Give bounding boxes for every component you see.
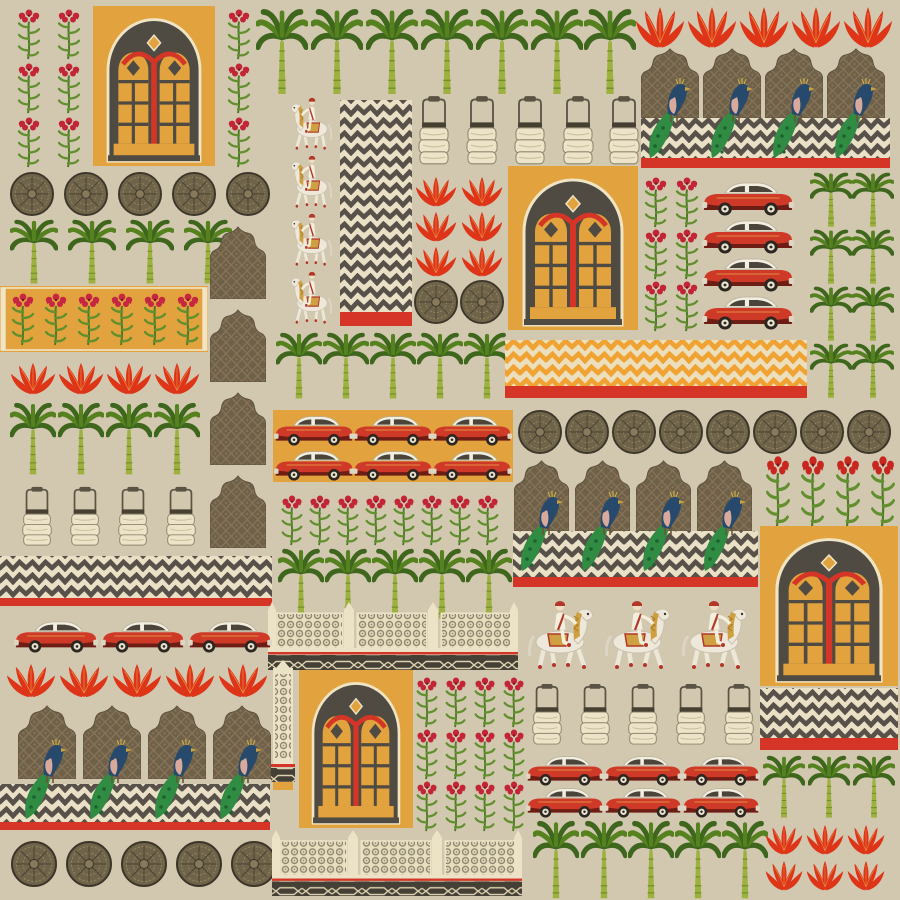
coin-medallion-motif [660,411,702,453]
flower-stalk-motif [19,64,39,113]
palm-tree-motif [374,551,417,618]
lotus-motif [7,664,55,697]
palm-tree-motif [854,174,893,226]
lotus-motif [416,177,457,206]
palm-tree-motif [325,335,368,398]
vintage-car-motif [702,259,794,292]
lotus-motif [844,7,892,48]
flower-stalk-motif [417,730,436,779]
vintage-car-motif [702,297,794,330]
coin-medallion-motif [848,411,890,453]
chevron-band [340,100,412,312]
chevron-band [760,688,898,738]
tiffin-can-motif [23,487,52,545]
horse-rider-motif [291,214,331,266]
tiffin-can-motif [609,96,639,164]
lotus-motif [766,825,803,854]
flower-stalk-motif [19,118,39,167]
door-panel-motif [760,526,898,686]
tiffin-can-motif [167,487,196,545]
tiffin-can-motif [725,684,754,744]
flower-stalk-motif [504,782,523,831]
palm-tree-motif [812,174,851,226]
vintage-car-motif [682,757,760,786]
lotus-motif [113,664,161,697]
vintage-car-motif [604,757,682,786]
flower-stalk-motif [802,456,824,526]
flower-stalk-motif [229,64,249,113]
palm-tree-motif [419,335,462,398]
tiffin-can-motif [119,487,148,545]
flower-stalk-motif [310,496,329,545]
fence-pillar-motif [271,660,295,790]
tiffin-can-motif [533,684,562,744]
red-strip [641,158,890,168]
palm-tree-motif [313,12,361,94]
vintage-car-motif [604,789,682,818]
vintage-car-motif [702,183,794,216]
palm-tree-motif [468,551,511,618]
palm-tree-motif [854,288,893,340]
palm-tree-motif [855,758,894,818]
palm-tree-motif [60,405,103,474]
flower-stalk-motif [475,678,494,727]
horse-rider-motif [530,601,593,669]
coin-medallion-motif [232,842,276,886]
palm-tree-motif [810,758,849,818]
palm-tree-motif [535,824,578,899]
vintage-car-motif [526,789,604,818]
flower-stalk-motif [677,178,697,227]
lotus-motif [848,861,885,890]
palm-tree-motif [854,345,893,397]
flower-stalk-motif [872,456,894,526]
palm-tree-motif [466,335,509,398]
flower-stalk-motif [422,496,441,545]
flower-stalk-motif [504,678,523,727]
door-panel-motif [299,670,413,828]
tiffin-can-motif [467,96,497,164]
pattern-artwork [0,0,900,900]
lotus-motif [11,363,55,394]
tiffin-can-motif [563,96,593,164]
horse-rider-motif [684,601,747,669]
lotus-motif [462,247,503,276]
lotus-motif [740,7,788,48]
vintage-car-motif [526,757,604,786]
palm-tree-motif [586,12,634,94]
chevron-band [505,340,807,386]
flower-stalk-motif [837,456,859,526]
flower-band-panel [0,286,208,352]
tiffin-can-motif [629,684,658,744]
lotus-motif [848,825,885,854]
flower-stalk-motif [450,496,469,545]
palm-tree-motif [630,824,673,899]
flower-stalk-motif [282,496,301,545]
lotus-motif [688,7,736,48]
red-strip [513,577,758,587]
palm-tree-motif [278,335,321,398]
flower-stalk-motif [677,282,697,331]
palm-tree-motif [812,288,851,340]
lotus-motif [107,363,151,394]
coin-medallion-motif [177,842,221,886]
palm-tree-motif [478,12,526,94]
coin-medallion-motif [122,842,166,886]
flower-stalk-motif [366,496,385,545]
lotus-motif [59,363,103,394]
flower-stalk-motif [446,782,465,831]
palm-tree-motif [70,222,115,284]
flower-stalk-motif [338,496,357,545]
flower-stalk-motif [767,456,789,526]
flower-stalk-motif [417,782,436,831]
red-strip [760,738,898,750]
coin-medallion-motif [12,842,56,886]
lotus-motif [166,664,214,697]
flower-stalk-motif [59,10,79,59]
palm-tree-motif [12,222,57,284]
palm-tree-motif [583,824,626,899]
red-strip [340,312,412,326]
artwork-svg [0,0,900,900]
flower-stalk-motif [394,496,413,545]
palm-tree-motif [156,405,199,474]
coin-medallion-motif [173,173,215,215]
flower-stalk-motif [646,230,666,279]
horse-rider-motif [607,601,670,669]
lotus-motif [807,861,844,890]
flower-stalk-motif [59,118,79,167]
flower-stalk-motif [677,230,697,279]
lotus-motif [416,212,457,241]
flower-stalk-motif [446,678,465,727]
lotus-motif [155,363,199,394]
coin-medallion-motif [67,842,111,886]
tiffin-can-motif [419,96,449,164]
coin-medallion-motif [519,411,561,453]
palm-tree-motif [421,551,464,618]
lotus-motif [636,7,684,48]
lotus-motif [792,7,840,48]
tiffin-can-motif [677,684,706,744]
vintage-car-motif [101,622,185,653]
jali-arch-motif [210,476,266,548]
palm-tree-motif [854,231,893,283]
palm-tree-motif [108,405,151,474]
palm-tree-motif [812,345,851,397]
lotus-motif [462,177,503,206]
horse-rider-motif [291,98,331,150]
flower-stalk-motif [59,64,79,113]
coin-medallion-motif [801,411,843,453]
palm-tree-motif [128,222,173,284]
tiffin-can-motif [581,684,610,744]
red-strip [0,822,270,830]
tiffin-can-motif [515,96,545,164]
horse-rider-motif [291,272,331,324]
coin-medallion-motif [566,411,608,453]
coin-medallion-motif [11,173,53,215]
palm-tree-motif [280,551,323,618]
palm-tree-motif [12,405,55,474]
flower-stalk-motif [646,282,666,331]
door-panel-motif [93,6,215,166]
lotus-motif [60,664,108,697]
chevron-band [0,556,272,598]
coin-medallion-motif [415,281,457,323]
flower-stalk-motif [446,730,465,779]
palm-tree-motif [372,335,415,398]
palm-tree-motif [258,12,306,94]
palm-tree-motif [812,231,851,283]
red-strip [505,386,807,398]
lotus-motif [766,861,803,890]
palm-tree-motif [423,12,471,94]
flower-stalk-motif [19,10,39,59]
jali-arch-motif [210,310,266,382]
flower-stalk-motif [229,118,249,167]
lotus-motif [416,247,457,276]
fence-motif [272,830,522,896]
coin-medallion-motif [707,411,749,453]
flower-stalk-motif [478,496,497,545]
coin-medallion-motif [754,411,796,453]
lotus-motif [219,664,267,697]
door-panel-motif [508,166,638,330]
jali-arch-motif [210,393,266,465]
red-strip [0,598,272,606]
tiffin-can-motif [71,487,100,545]
lotus-motif [462,212,503,241]
palm-tree-motif [533,12,581,94]
palm-tree-motif [724,824,767,899]
palm-tree-motif [368,12,416,94]
coin-medallion-motif [119,173,161,215]
flower-stalk-motif [229,10,249,59]
vintage-car-motif [14,622,98,653]
flower-stalk-motif [475,782,494,831]
flower-stalk-motif [475,730,494,779]
coin-medallion-motif [227,173,269,215]
vintage-car-motif [188,622,272,653]
vintage-car-motif [702,221,794,254]
flower-stalk-motif [504,730,523,779]
flower-stalk-motif [417,678,436,727]
coin-medallion-motif [65,173,107,215]
coin-medallion-motif [461,281,503,323]
flower-stalk-motif [646,178,666,227]
palm-tree-motif [765,758,804,818]
lotus-motif [807,825,844,854]
palm-tree-motif [677,824,720,899]
horse-rider-motif [291,156,331,208]
vintage-car-motif [682,789,760,818]
coin-medallion-motif [613,411,655,453]
